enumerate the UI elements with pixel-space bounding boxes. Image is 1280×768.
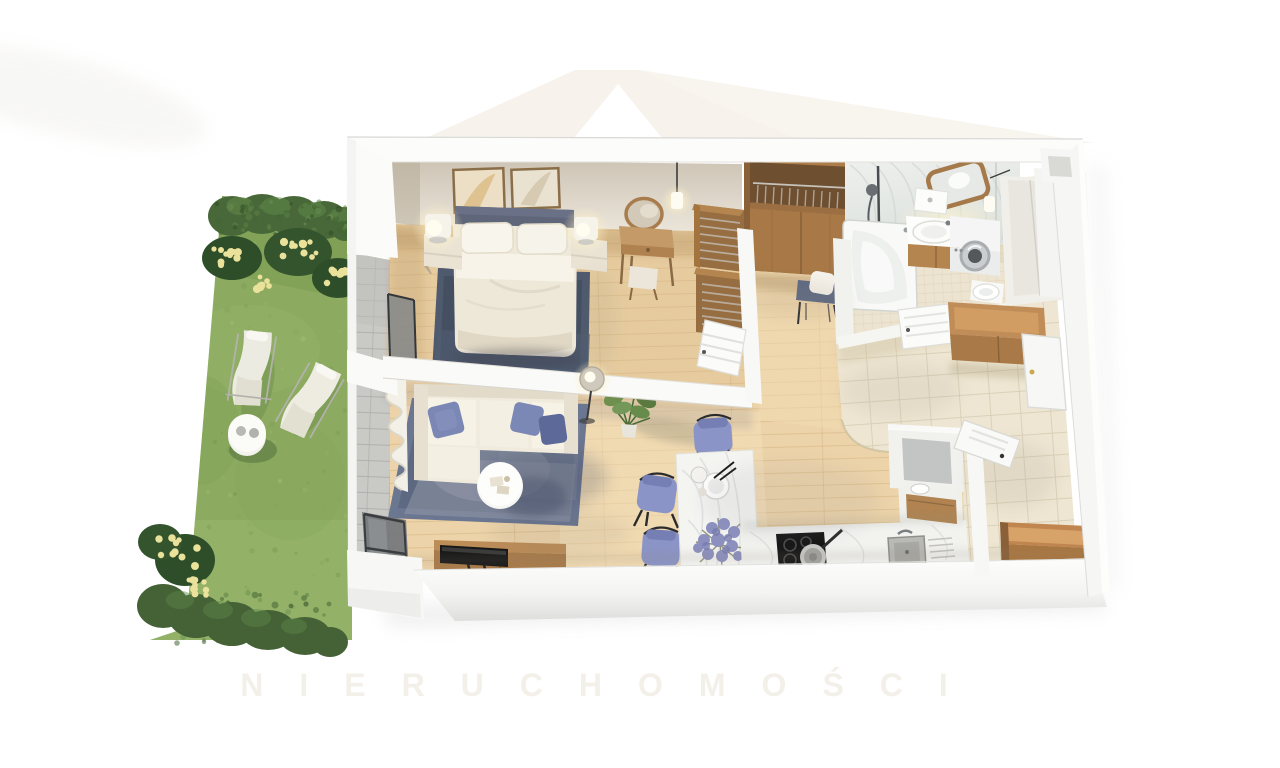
svg-text:NIERUCHOMOŚCI: NIERUCHOMOŚCI — [240, 667, 984, 703]
